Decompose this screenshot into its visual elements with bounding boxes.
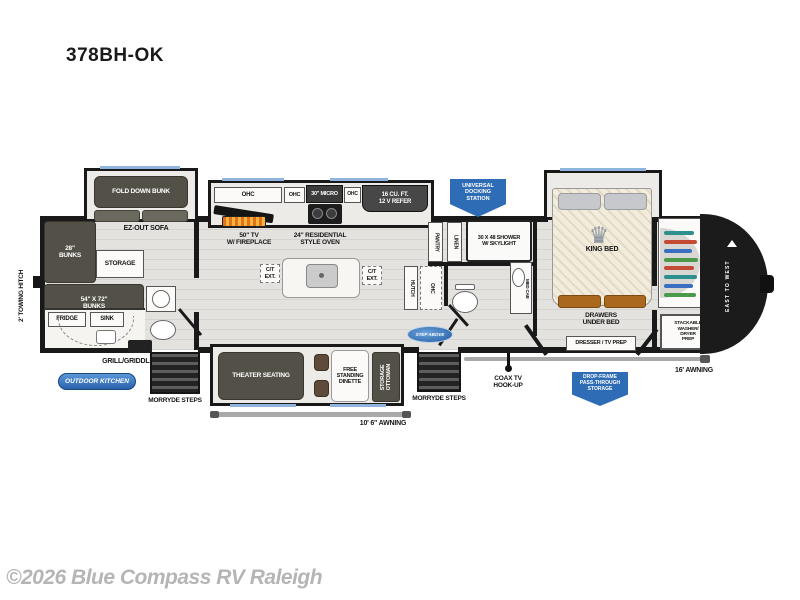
front-awning-cap [700, 355, 710, 363]
theater-seating: THEATER SEATING [218, 352, 304, 400]
bunks-28-label: 28" BUNKS [59, 245, 81, 259]
east-to-west-logo: EAST TO WEST [726, 250, 732, 322]
copyright-text: ©2026 Blue Compass RV Raleigh [6, 566, 322, 590]
storage-label: STORAGE [105, 260, 136, 267]
under-bed-drawers-icon [558, 295, 646, 308]
living-slide-window-b-icon [330, 404, 386, 407]
ohc-a-box: OHC [214, 187, 282, 203]
ez-out-sofa-cushions [94, 210, 188, 222]
refrigerator-label: 16 CU. FT. 12 V REFER [379, 192, 411, 205]
outdoor-sink-icon [96, 330, 116, 344]
ohc-vert-box: OHC [420, 266, 442, 310]
refrigerator: 16 CU. FT. 12 V REFER [362, 185, 428, 212]
burner-right-icon [326, 208, 337, 219]
main-awning-icon [214, 412, 406, 417]
living-slide-window-a-icon [230, 404, 296, 407]
pillow-left-icon [558, 193, 601, 210]
burner-left-icon [312, 208, 323, 219]
towing-hitch-icon [33, 276, 42, 288]
hutch-box: HUTCH [404, 266, 418, 310]
storage-cabinet: STORAGE [96, 250, 144, 278]
drop-frame-badge: DROP-FRAME PASS-THROUGH STORAGE [572, 372, 628, 406]
rear-steps [150, 352, 200, 394]
king-bed-label: KING BED [560, 246, 644, 254]
kitchen-window-a-icon [222, 178, 284, 181]
king-slide-window-icon [560, 168, 646, 171]
dresser-box: DRESSER / TV PREP [566, 336, 636, 351]
entry-steps [417, 352, 461, 392]
theater-label: THEATER SEATING [232, 372, 289, 379]
toilet-tank-icon [455, 284, 475, 290]
fold-down-bunk: FOLD DOWN BUNK [94, 176, 188, 208]
ohc-vert-label: OHC [428, 283, 434, 294]
front-awning-icon [464, 357, 708, 361]
washer-dryer-label: STACKABLE WASHER/ DRYER PREP [674, 321, 701, 342]
east-to-west-mountain-icon [727, 240, 737, 247]
microwave: 30" MICRO [306, 185, 343, 203]
ct-ext-left-label: C/T EXT. [265, 267, 276, 279]
crown-icon: ♛ [589, 222, 609, 248]
bunkroom-wall-upper [194, 222, 199, 278]
kitchen-window-b-icon [330, 178, 388, 181]
grill-icon [128, 340, 152, 353]
linen-box: LINEN [447, 222, 462, 262]
ohc-c-label: OHC [347, 192, 358, 198]
bunks-28: 28" BUNKS [44, 221, 96, 283]
kingpin-hitch-icon [760, 275, 774, 293]
dinette-label: FREE STANDING DINETTE [337, 367, 364, 385]
oven-label: 24" RESIDENTIAL STYLE OVEN [282, 232, 358, 246]
linen-label: LINEN [452, 235, 458, 249]
main-awning-label: 10' 6" AWNING [338, 420, 428, 428]
main-awning-cap-left [210, 411, 219, 418]
toilet-icon [452, 291, 478, 313]
outdoor-kitchen-badge: OUTDOOR KITCHEN [58, 373, 136, 390]
island-faucet-icon [319, 273, 324, 278]
drawers-label: DRAWERS UNDER BED [556, 312, 646, 326]
microwave-label: 30" MICRO [311, 191, 338, 197]
dresser-label: DRESSER / TV PREP [575, 340, 626, 346]
med-cab-label: MED CAB [524, 266, 529, 312]
shower: 30 X 48 SHOWER W/ SKYLIGHT [466, 220, 532, 262]
closet-wall-upper [652, 218, 657, 286]
pantry-box: PANTRY [428, 222, 443, 262]
tv-fireplace-label: 50" TV W/ FIREPLACE [212, 232, 286, 246]
bunk-bath-sink-icon [152, 290, 170, 308]
ct-ext-right-box: C/T EXT. [362, 266, 382, 285]
docking-station-badge: UNIVERSAL DOCKING STATION [450, 179, 506, 217]
fold-down-bunk-label: FOLD DOWN BUNK [112, 188, 170, 195]
step-above-badge: STEP ABOVE [407, 326, 453, 343]
pillow-right-icon [604, 193, 647, 210]
coax-hookup-dot-icon [505, 365, 512, 372]
bath-wall-v2 [444, 262, 448, 306]
bath-wall-v [533, 218, 537, 336]
floorplan-canvas: 378BH-OK ©2026 Blue Compass RV Raleigh 2… [0, 0, 800, 600]
dinette-chair-top-icon [314, 354, 329, 371]
main-awning-cap-right [402, 411, 411, 418]
ct-ext-right-label: C/T EXT. [367, 269, 378, 281]
dinette-table: FREE STANDING DINETTE [331, 350, 369, 402]
shower-label: 30 X 48 SHOWER W/ SKYLIGHT [478, 235, 520, 247]
ohc-c-box: OHC [344, 187, 361, 203]
bunk-slide-window-icon [100, 166, 180, 169]
ottoman-label: STORAGE OTTOMAN [380, 364, 392, 390]
towing-hitch-label: 2' TOWING HITCH [18, 240, 25, 352]
bunk-bath-toilet-icon [150, 320, 176, 340]
hanging-clothes-icon [664, 231, 700, 297]
ohc-a-label: OHC [242, 192, 255, 199]
ohc-b-box: OHC [284, 187, 305, 203]
fireplace-icon [222, 216, 266, 227]
front-awning-label: 16' AWNING [652, 367, 736, 375]
ct-ext-left-box: C/T EXT. [260, 264, 280, 283]
entry-steps-label: MORRYDE STEPS [382, 395, 496, 402]
dinette-chair-bottom-icon [314, 380, 329, 397]
model-title: 378BH-OK [66, 45, 164, 67]
pantry-label: PANTRY [433, 233, 439, 252]
coax-label: COAX TV HOOK-UP [478, 375, 538, 389]
front-cap [700, 214, 768, 354]
ohc-b-label: OHC [289, 192, 301, 198]
ez-out-sofa-label: EZ-OUT SOFA [96, 225, 196, 233]
hutch-label: HUTCH [408, 280, 414, 297]
